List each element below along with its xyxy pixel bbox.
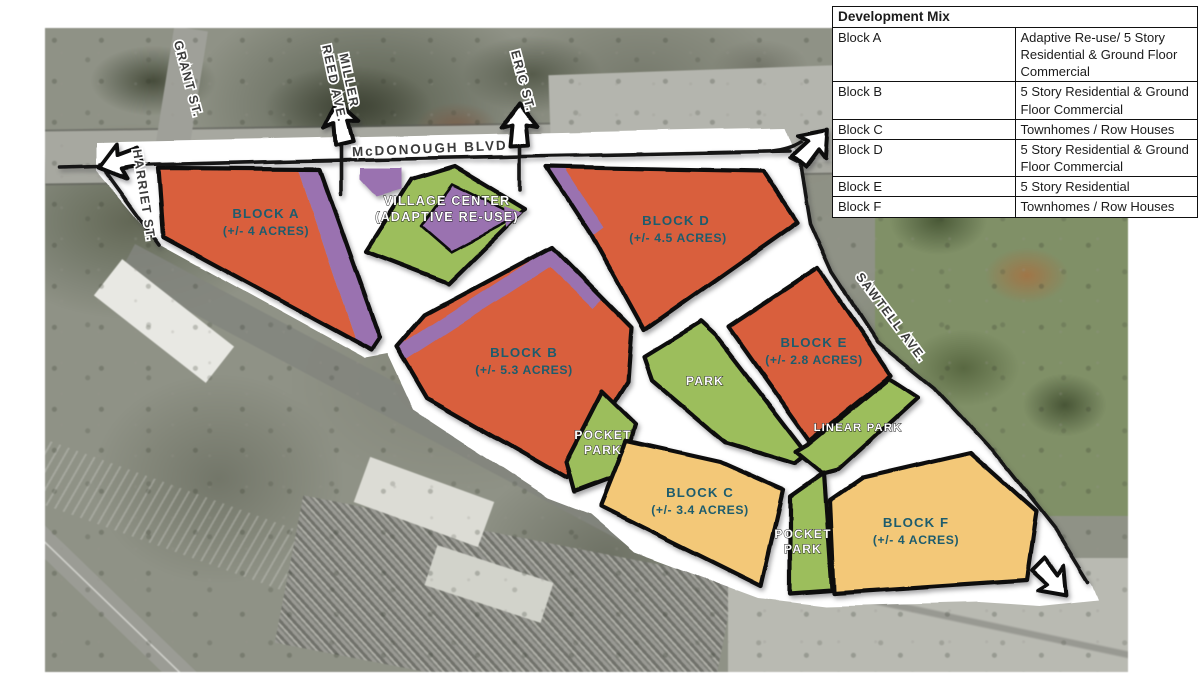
table-row: Block A Adaptive Re-use/ 5 Story Residen… bbox=[833, 27, 1198, 81]
block-a-use-cell: Adaptive Re-use/ 5 Story Residential & G… bbox=[1015, 27, 1198, 81]
miller-reed-label: MILLER REED AVE. bbox=[319, 40, 364, 123]
block-a-acres: (+/- 4 ACRES) bbox=[223, 224, 309, 238]
table-title-row: Development Mix bbox=[833, 7, 1198, 28]
grant-street-label: GRANT ST. bbox=[171, 39, 205, 119]
block-a-cell: Block A bbox=[833, 27, 1016, 81]
table-row: Block E 5 Story Residential bbox=[833, 177, 1198, 197]
block-d-cell: Block D bbox=[833, 139, 1016, 176]
pocket-park-west-label2: PARK bbox=[584, 443, 622, 457]
eric-street-label: ERIC ST. bbox=[508, 49, 538, 113]
block-b-label: BLOCK B bbox=[490, 345, 558, 360]
village-center-label: VILLAGE CENTER bbox=[384, 194, 511, 208]
block-d-use-cell: 5 Story Residential & Ground Floor Comme… bbox=[1015, 139, 1198, 176]
block-e-cell: Block E bbox=[833, 177, 1016, 197]
block-e-use-cell: 5 Story Residential bbox=[1015, 177, 1198, 197]
table-row: Block F Townhomes / Row Houses bbox=[833, 197, 1198, 217]
block-d-label: BLOCK D bbox=[642, 213, 710, 228]
block-f-acres: (+/- 4 ACRES) bbox=[873, 533, 959, 547]
block-f-use-cell: Townhomes / Row Houses bbox=[1015, 197, 1198, 217]
block-c-cell: Block C bbox=[833, 119, 1016, 139]
block-e-acres: (+/- 2.8 ACRES) bbox=[765, 353, 863, 367]
block-a-label: BLOCK A bbox=[232, 206, 299, 221]
site-plan-page: BLOCK A (+/- 4 ACRES) BLOCK B (+/- 5.3 A… bbox=[0, 0, 1200, 699]
table-title: Development Mix bbox=[833, 7, 1198, 28]
pocket-park-east-label2: PARK bbox=[784, 542, 822, 556]
development-mix-table: Development Mix Block A Adaptive Re-use/… bbox=[832, 6, 1198, 218]
linear-park-label: LINEAR PARK bbox=[814, 422, 903, 434]
block-f-cell: Block F bbox=[833, 197, 1016, 217]
block-c-use-cell: Townhomes / Row Houses bbox=[1015, 119, 1198, 139]
block-e-label: BLOCK E bbox=[780, 335, 847, 350]
table-row: Block C Townhomes / Row Houses bbox=[833, 119, 1198, 139]
block-b-use-cell: 5 Story Residential & Ground Floor Comme… bbox=[1015, 82, 1198, 119]
block-c-label: BLOCK C bbox=[666, 485, 734, 500]
pocket-park-west-label: POCKET bbox=[574, 428, 631, 442]
block-c-acres: (+/- 3.4 ACRES) bbox=[651, 503, 749, 517]
table-row: Block D 5 Story Residential & Ground Flo… bbox=[833, 139, 1198, 176]
pocket-park-east-label: POCKET bbox=[774, 527, 831, 541]
table-row: Block B 5 Story Residential & Ground Flo… bbox=[833, 82, 1198, 119]
block-d-acres: (+/- 4.5 ACRES) bbox=[629, 231, 727, 245]
village-center-sublabel: (ADAPTIVE RE-USE) bbox=[375, 210, 519, 224]
park-label: PARK bbox=[686, 374, 724, 388]
block-b-acres: (+/- 5.3 ACRES) bbox=[475, 363, 573, 377]
block-b-cell: Block B bbox=[833, 82, 1016, 119]
block-f-label: BLOCK F bbox=[883, 515, 949, 530]
